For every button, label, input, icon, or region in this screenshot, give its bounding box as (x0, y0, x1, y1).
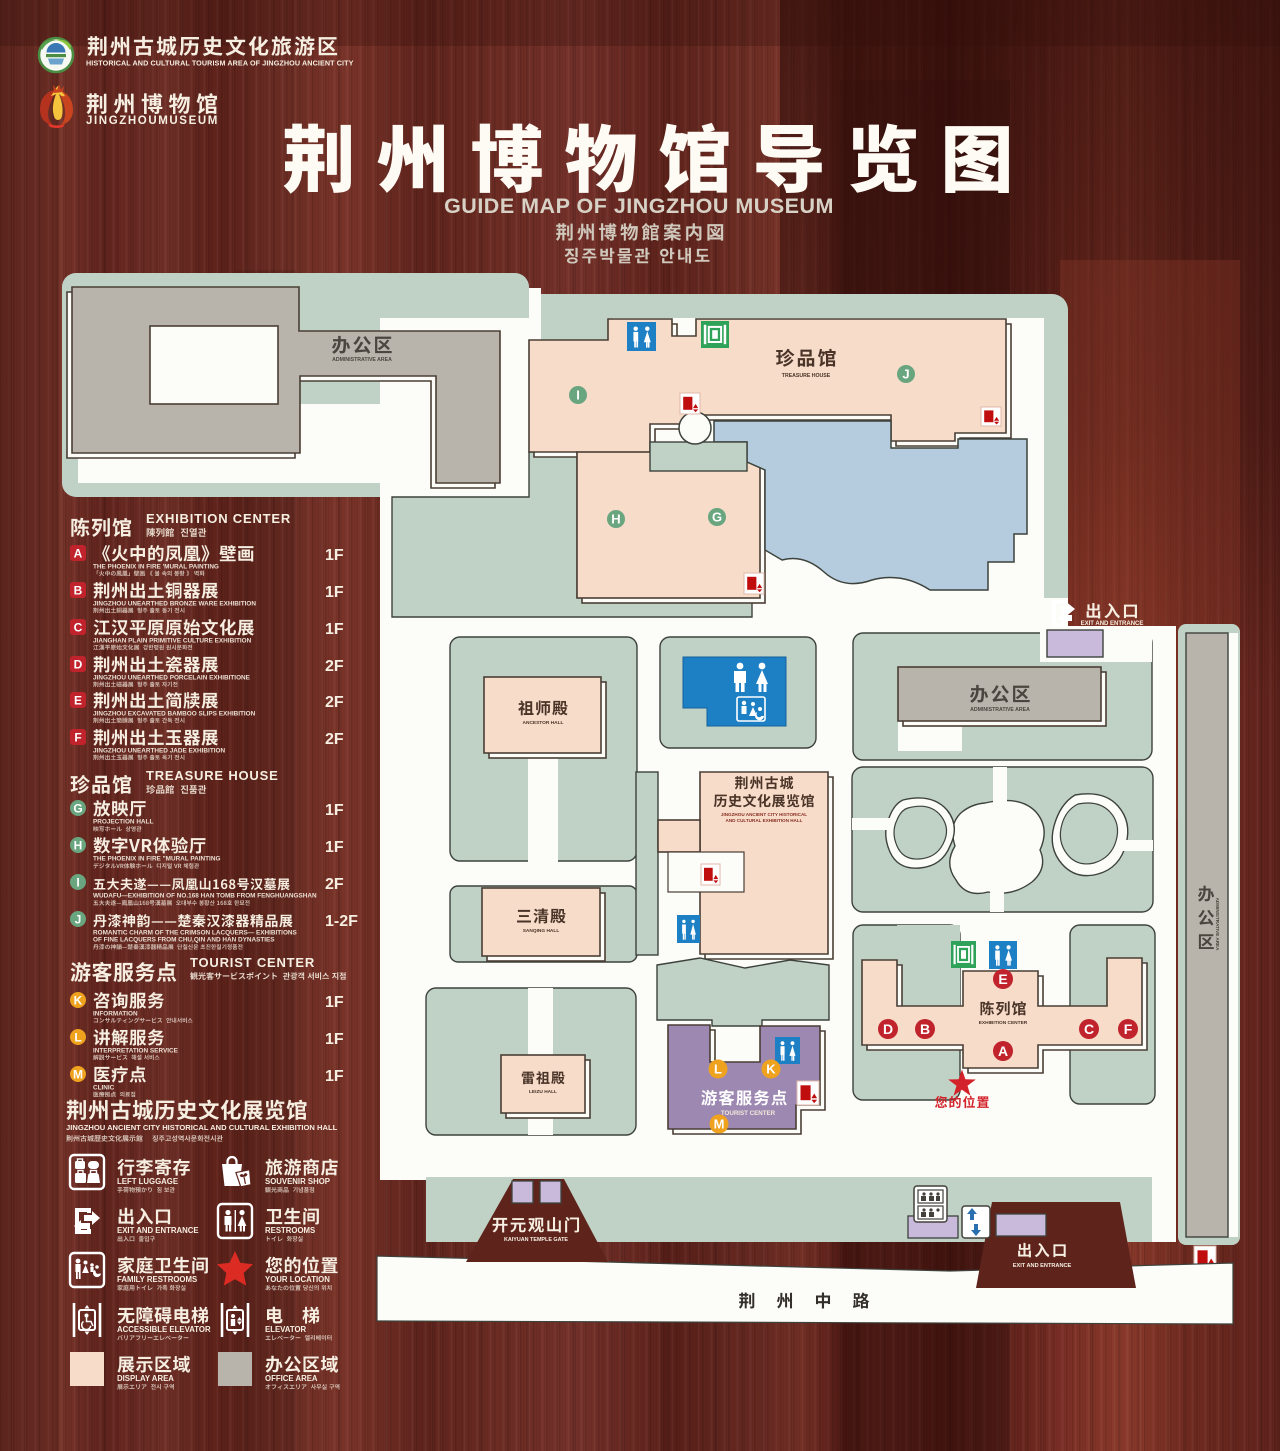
svg-text:2F: 2F (325, 658, 344, 675)
svg-text:CLINIC: CLINIC (93, 1085, 115, 1092)
svg-text:OF FINE LACQUERS FROM CHU,QIN: OF FINE LACQUERS FROM CHU,QIN AND HAN DY… (93, 937, 275, 944)
svg-text:A: A (74, 547, 83, 561)
svg-text:THE PHOENIX IN FIRE "MURAL PAI: THE PHOENIX IN FIRE "MURAL PAINTING (93, 856, 220, 863)
svg-text:M: M (73, 1068, 83, 1082)
svg-text:1-2F: 1-2F (325, 913, 358, 930)
svg-text:SOUVENIR SHOP: SOUVENIR SHOP (265, 1177, 330, 1186)
svg-text:C: C (1084, 1021, 1094, 1037)
svg-text:K: K (766, 1062, 776, 1077)
svg-text:C: C (74, 621, 83, 635)
svg-text:1F: 1F (325, 1031, 344, 1048)
svg-text:1F: 1F (325, 994, 344, 1011)
svg-text:D: D (883, 1021, 893, 1037)
svg-text:EXHIBITION CENTER: EXHIBITION CENTER (979, 1020, 1028, 1026)
svg-text:B: B (920, 1021, 930, 1037)
svg-text:I: I (76, 876, 79, 890)
svg-text:WUDAFU—EXHIBITION OF NO.168 HA: WUDAFU—EXHIBITION OF NO.168 HAN TOMB FRO… (93, 893, 317, 900)
svg-text:FAMILY RESTROOMS: FAMILY RESTROOMS (117, 1275, 197, 1284)
svg-text:GUIDE MAP OF JINGZHOU MUSEUM: GUIDE MAP OF JINGZHOU MUSEUM (444, 194, 834, 218)
svg-text:L: L (74, 1031, 81, 1045)
svg-text:EXIT AND ENTRANCE: EXIT AND ENTRANCE (117, 1226, 199, 1235)
svg-text:EXHIBITION CENTER: EXHIBITION CENTER (146, 511, 291, 526)
svg-text:L: L (714, 1062, 722, 1077)
svg-text:1F: 1F (325, 1068, 344, 1085)
svg-text:HISTORICAL AND CULTURAL TOURIS: HISTORICAL AND CULTURAL TOURISM AREA OF … (86, 59, 354, 68)
svg-text:SANQING HALL: SANQING HALL (523, 928, 560, 934)
svg-text:2F: 2F (325, 731, 344, 748)
svg-text:ADMINISTRATIVE AREA: ADMINISTRATIVE AREA (332, 357, 392, 363)
svg-text:H: H (611, 512, 620, 527)
svg-text:LEIZU HALL: LEIZU HALL (529, 1089, 557, 1095)
svg-text:J: J (75, 913, 82, 927)
svg-text:2F: 2F (325, 876, 344, 893)
svg-text:JINGZHOU UNEARTHED BRONZE WARE: JINGZHOU UNEARTHED BRONZE WARE EXHIBITIO… (93, 601, 256, 608)
svg-text:D: D (74, 658, 83, 672)
svg-text:OFFICE AREA: OFFICE AREA (265, 1374, 318, 1383)
svg-text:H: H (74, 839, 83, 853)
svg-text:YOUR LOCATION: YOUR LOCATION (265, 1275, 330, 1284)
svg-text:JINGZHOUMUSEUM: JINGZHOUMUSEUM (86, 115, 219, 127)
svg-text:K: K (74, 994, 83, 1008)
svg-text:ADMINISTRATIVE AREA: ADMINISTRATIVE AREA (970, 707, 1030, 713)
svg-text:JINGZHOU UNEARTHED PORCELAIN E: JINGZHOU UNEARTHED PORCELAIN EXHIBITIONE (93, 675, 251, 682)
svg-text:INFORMATION: INFORMATION (93, 1011, 138, 1018)
svg-text:JIANGHAN PLAIN PRIMITIVE CULTU: JIANGHAN PLAIN PRIMITIVE CULTURE EXHIBIT… (93, 638, 252, 645)
svg-text:ANCESTOR HALL: ANCESTOR HALL (523, 720, 564, 726)
svg-text:1F: 1F (325, 839, 344, 856)
svg-text:INTERPRETATION SERVICE: INTERPRETATION SERVICE (93, 1048, 179, 1055)
svg-text:1F: 1F (325, 802, 344, 819)
svg-text:EXIT AND ENTRANCE: EXIT AND ENTRANCE (1013, 1263, 1072, 1269)
svg-text:JINGZHOU UNEARTHED JADE EXHIBI: JINGZHOU UNEARTHED JADE EXHIBITION (93, 748, 225, 755)
svg-text:J: J (902, 367, 909, 382)
svg-text:A: A (998, 1043, 1008, 1059)
svg-text:I: I (576, 388, 580, 403)
svg-text:F: F (74, 731, 81, 745)
svg-text:1F: 1F (325, 584, 344, 601)
svg-text:ELEVATOR: ELEVATOR (265, 1325, 307, 1334)
svg-text:1F: 1F (325, 621, 344, 638)
svg-text:TOURIST CENTER: TOURIST CENTER (190, 955, 315, 970)
svg-text:ACCESSIBLE ELEVATOR: ACCESSIBLE ELEVATOR (117, 1325, 211, 1334)
svg-text:1F: 1F (325, 547, 344, 564)
svg-text:THE PHOENIX IN FIRE 'MURAL PAI: THE PHOENIX IN FIRE 'MURAL PAINTING (93, 564, 219, 571)
svg-text:AND CULTURAL EXHIBITION HALL: AND CULTURAL EXHIBITION HALL (726, 818, 803, 823)
svg-text:E: E (998, 971, 1007, 987)
svg-text:JINGZHOU EXCAVATED BAMBOO SLIP: JINGZHOU EXCAVATED BAMBOO SLIPS EXHIBITI… (93, 711, 256, 718)
svg-text:ADMINISTRATIVE AREA: ADMINISTRATIVE AREA (1215, 898, 1220, 952)
svg-text:DISPLAY AREA: DISPLAY AREA (117, 1374, 174, 1383)
svg-text:TREASURE HOUSE: TREASURE HOUSE (146, 768, 279, 783)
svg-text:ROMANTIC CHARM OF THE CRIMSON: ROMANTIC CHARM OF THE CRIMSON LACQUERS— … (93, 930, 298, 937)
svg-text:LEFT LUGGAGE: LEFT LUGGAGE (117, 1177, 178, 1186)
svg-text:JINGZHOU ANCIENT CITY HISTORIC: JINGZHOU ANCIENT CITY HISTORICAL AND CUL… (66, 1123, 338, 1132)
svg-text:JINGZHOU ANCIENT CITY HISTORIC: JINGZHOU ANCIENT CITY HISTORICAL (721, 812, 807, 817)
svg-text:2F: 2F (325, 694, 344, 711)
svg-text:G: G (712, 510, 722, 525)
svg-text:F: F (1124, 1021, 1133, 1037)
svg-text:TOURIST CENTER: TOURIST CENTER (721, 1110, 776, 1117)
svg-text:TREASURE HOUSE: TREASURE HOUSE (782, 373, 831, 379)
svg-text:RESTROOMS: RESTROOMS (265, 1226, 315, 1235)
svg-text:PROJECTION HALL: PROJECTION HALL (93, 819, 153, 826)
svg-text:G: G (73, 802, 82, 816)
svg-text:EXIT AND ENTRANCE: EXIT AND ENTRANCE (1081, 621, 1144, 627)
svg-text:KAIYUAN TEMPLE GATE: KAIYUAN TEMPLE GATE (504, 1237, 568, 1243)
svg-text:M: M (714, 1117, 725, 1132)
svg-text:E: E (74, 694, 82, 708)
svg-text:B: B (74, 584, 83, 598)
